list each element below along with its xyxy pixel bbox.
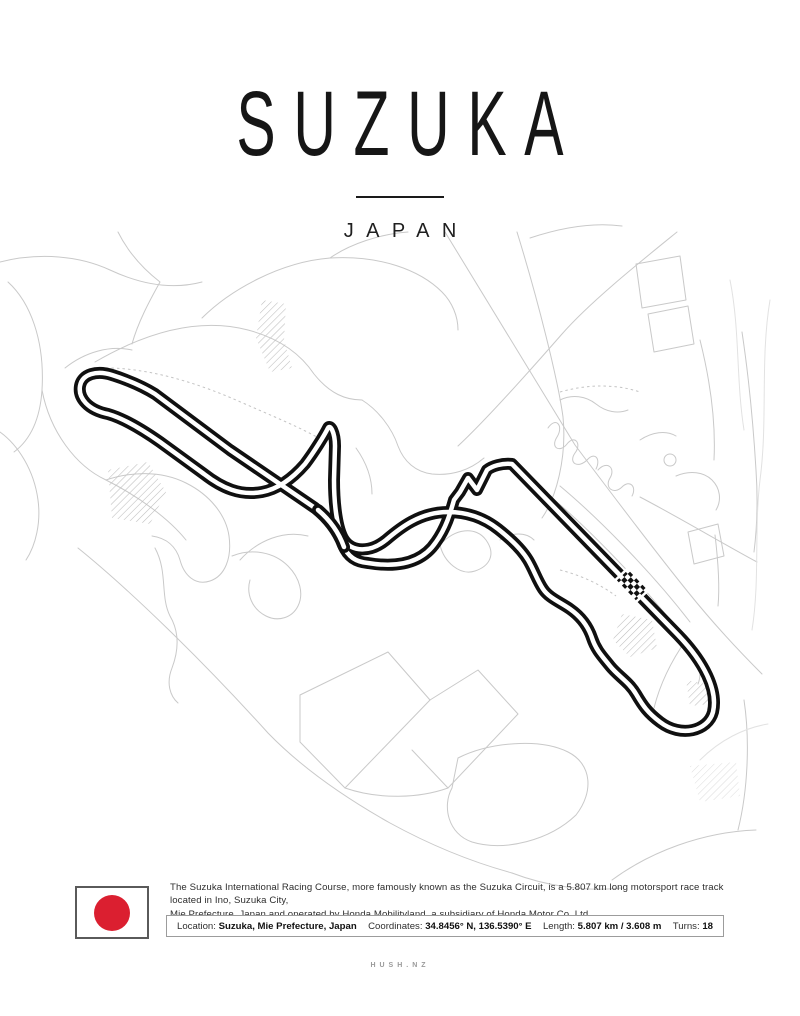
info-turns-value: 18 — [702, 921, 713, 932]
info-coordinates-label: Coordinates: — [368, 921, 422, 932]
info-coordinates: Coordinates: 34.8456° N, 136.5390° E — [368, 921, 531, 932]
poster-background: SUZUKA JAPAN The Suzuka International Ra… — [0, 0, 800, 1016]
info-length-value: 5.807 km / 3.608 m — [578, 921, 662, 932]
description-line-1: The Suzuka International Racing Course, … — [170, 882, 724, 906]
background-roads — [0, 225, 762, 889]
info-turns: Turns: 18 — [673, 921, 713, 932]
title-divider — [356, 196, 444, 198]
header: SUZUKA JAPAN — [0, 0, 800, 243]
japan-flag-circle — [94, 895, 130, 931]
page-subtitle: JAPAN — [0, 220, 800, 243]
info-bar: Location: Suzuka, Mie Prefecture, Japan … — [166, 915, 724, 937]
info-location: Location: Suzuka, Mie Prefecture, Japan — [177, 921, 357, 932]
info-coordinates-value: 34.8456° N, 136.5390° E — [425, 921, 531, 932]
info-length-label: Length: — [543, 921, 575, 932]
info-location-value: Suzuka, Mie Prefecture, Japan — [219, 921, 357, 932]
info-length: Length: 5.807 km / 3.608 m — [543, 921, 661, 932]
info-turns-label: Turns: — [673, 921, 700, 932]
page-title: SUZUKA — [144, 78, 656, 170]
track-centerline — [80, 373, 714, 731]
info-location-label: Location: — [177, 921, 216, 932]
brand-mark: HUSH.NZ — [0, 962, 800, 969]
japan-flag — [75, 886, 149, 939]
race-track — [80, 373, 714, 731]
